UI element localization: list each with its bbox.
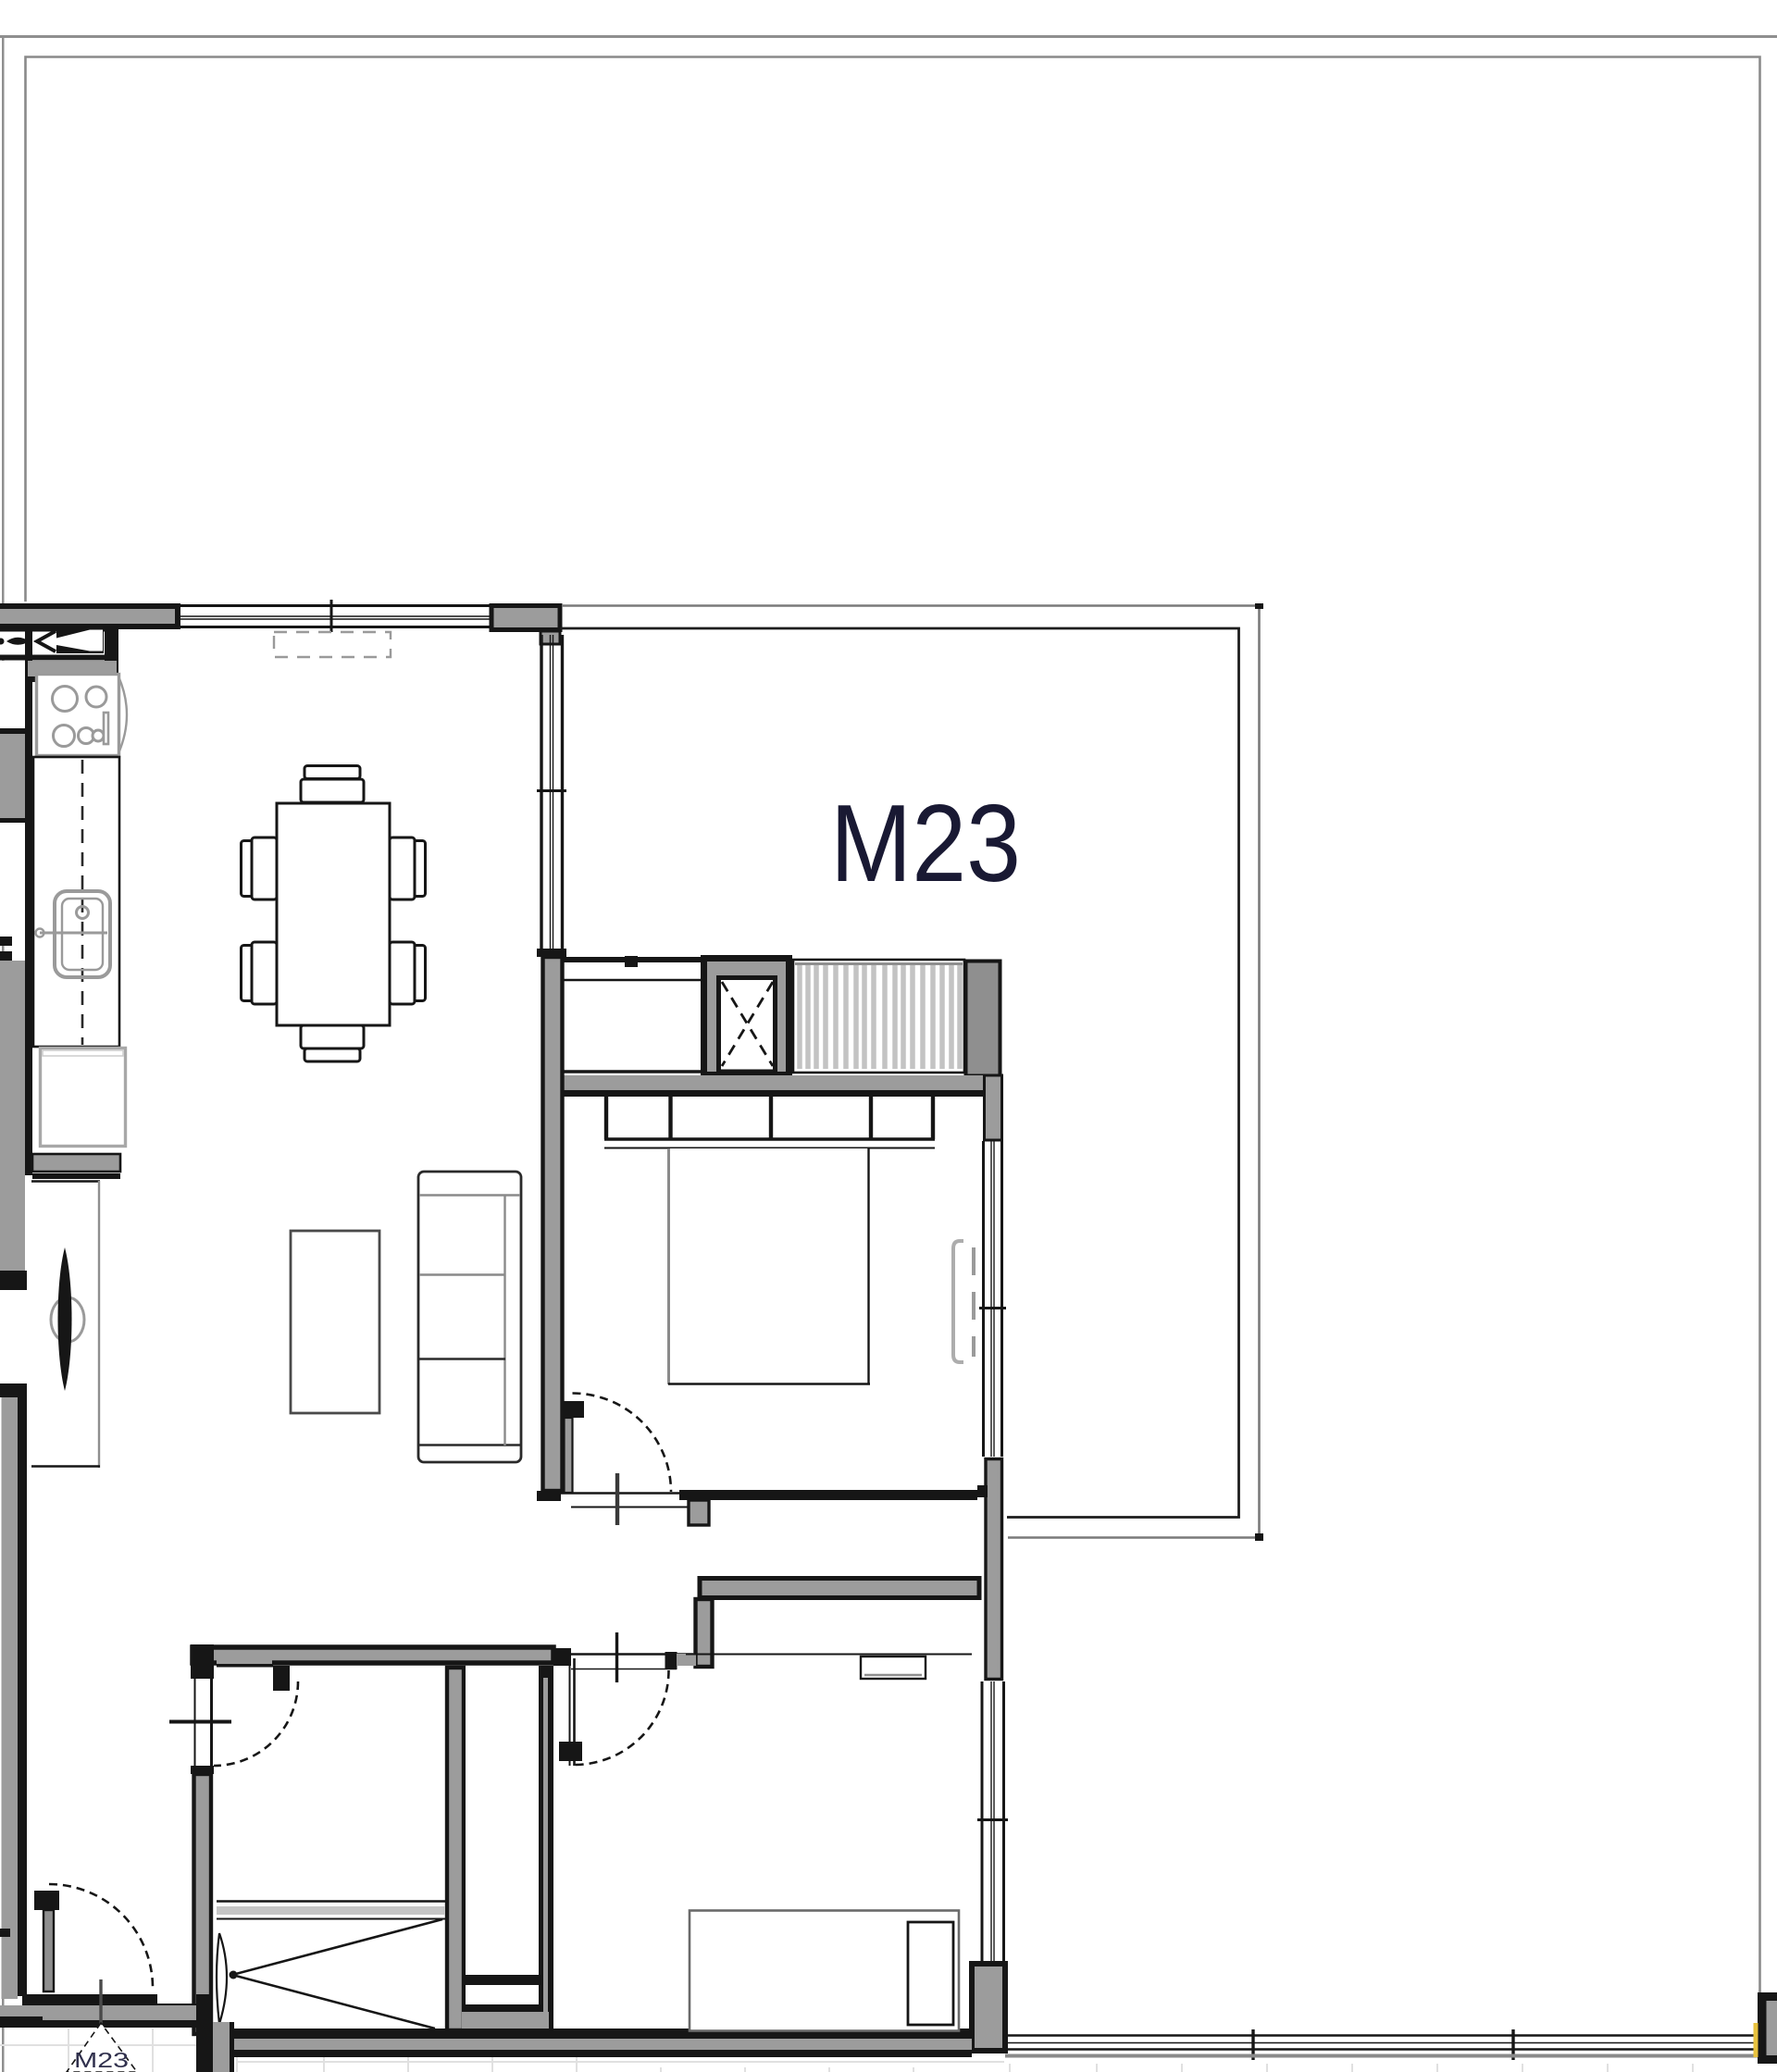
svg-text:M23: M23: [830, 782, 1021, 905]
svg-text:M23: M23: [74, 2048, 129, 2072]
